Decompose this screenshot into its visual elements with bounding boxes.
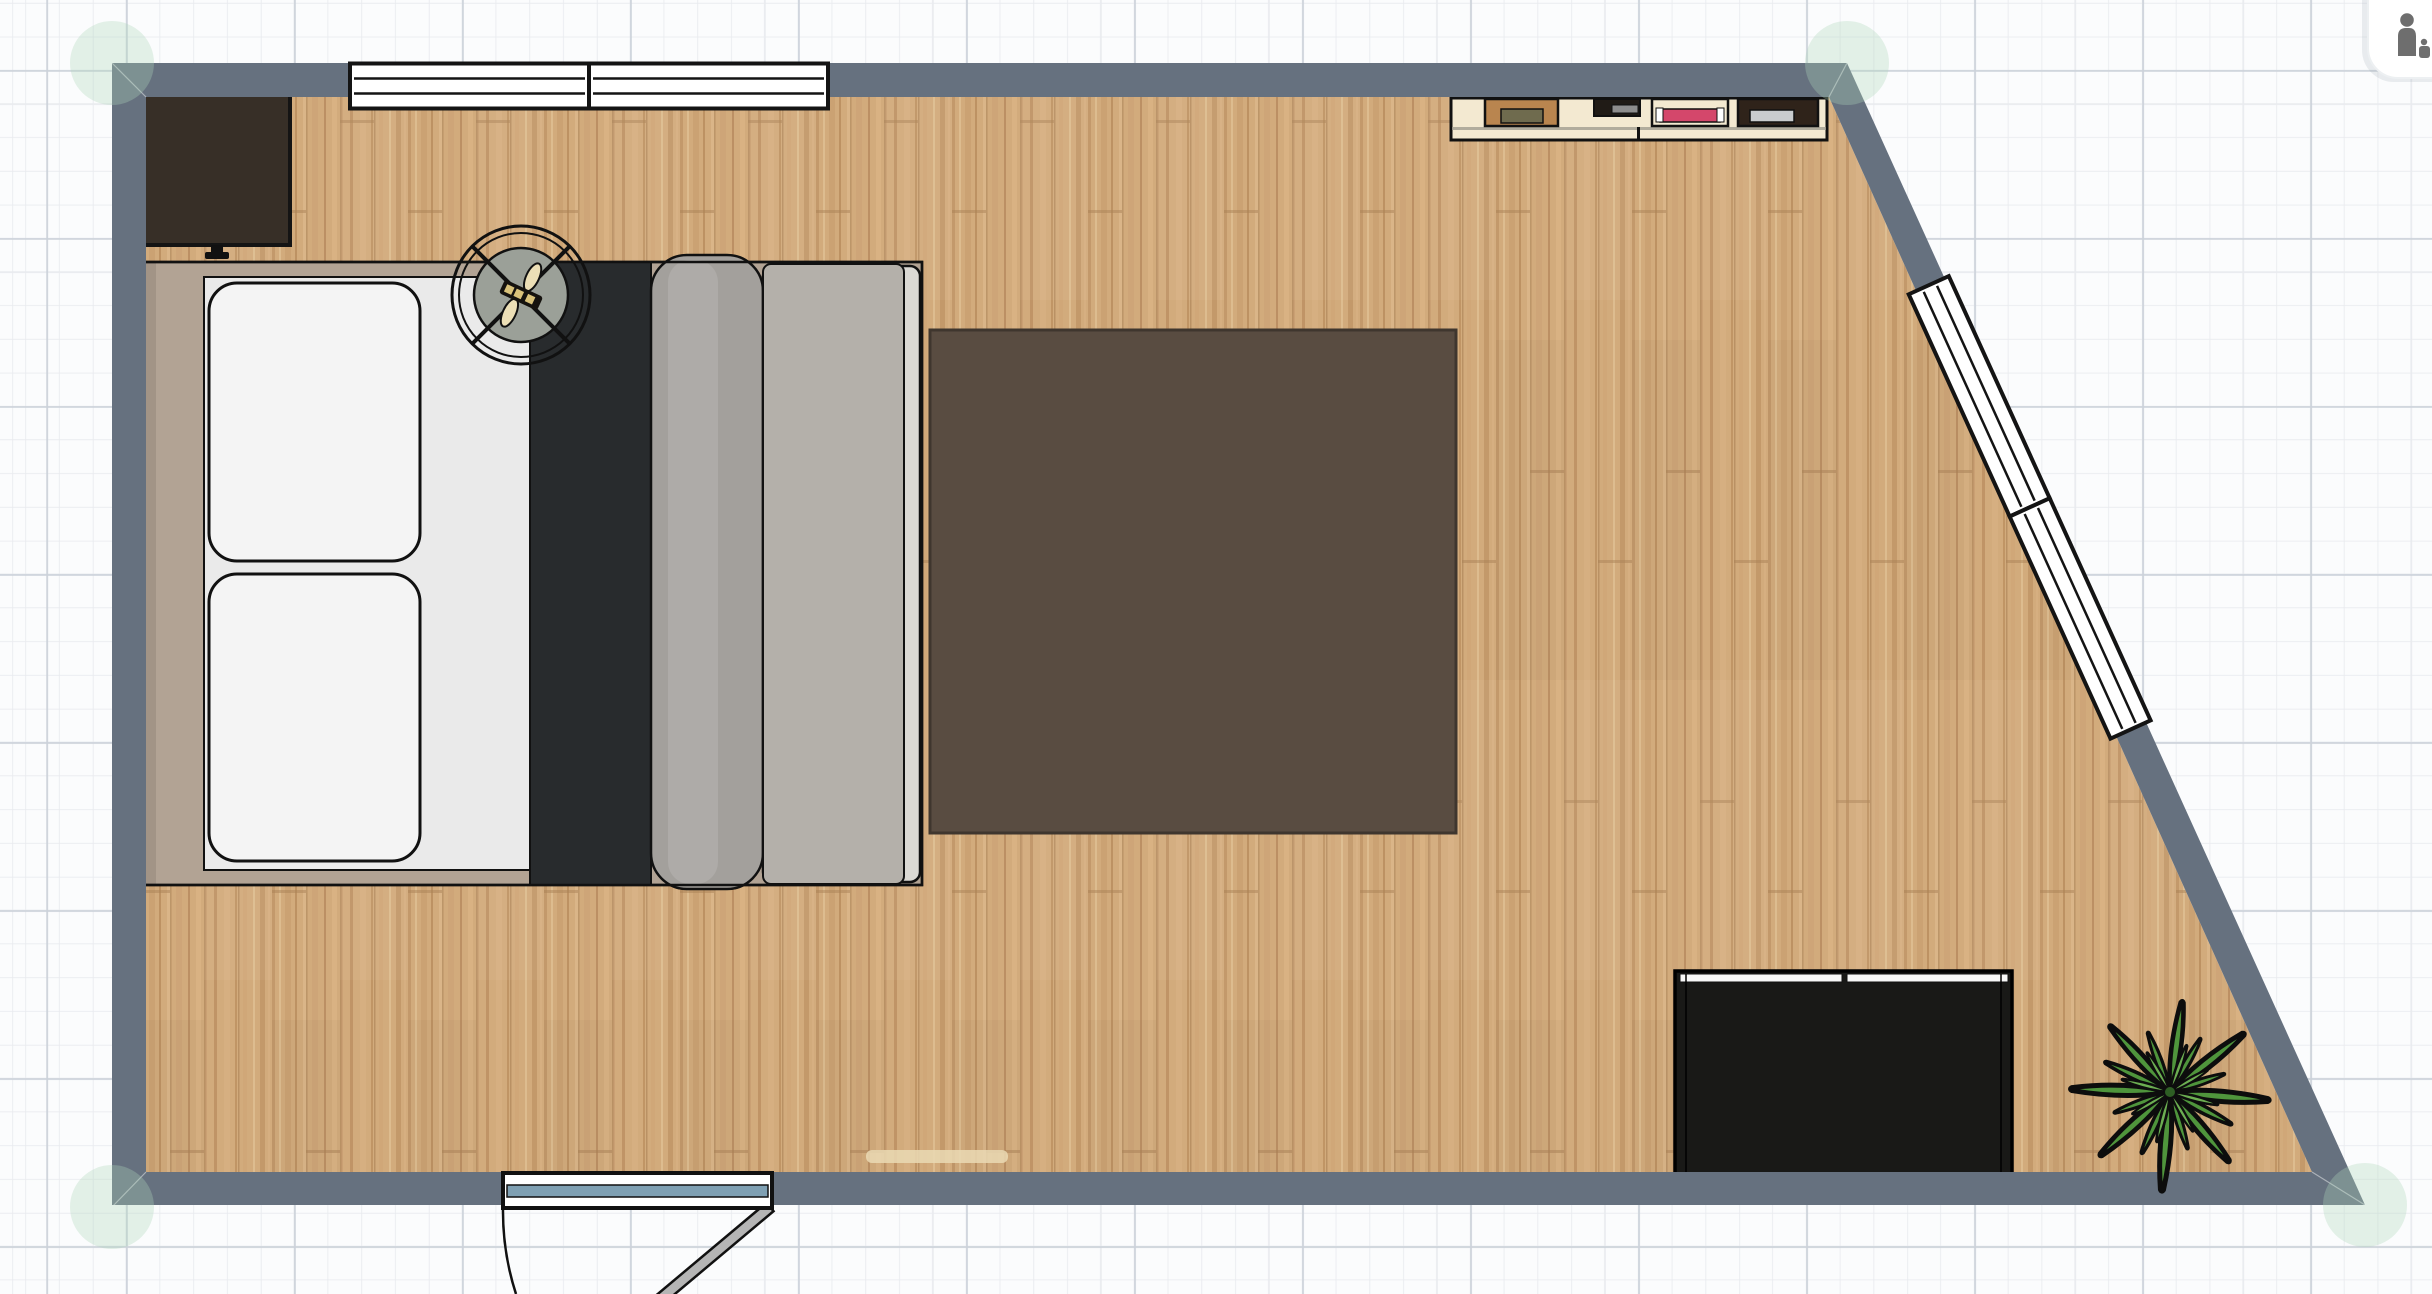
tv-mount-base [205, 252, 229, 259]
wall-shelf[interactable] [1451, 98, 1827, 140]
plant-core [2164, 1086, 2176, 1098]
shelf-item-cap [1717, 108, 1724, 122]
window-section[interactable] [589, 64, 828, 109]
bed-pillow[interactable] [209, 283, 420, 561]
door-leaf[interactable] [548, 1203, 773, 1294]
corner-snap-indicator [2323, 1163, 2407, 1247]
dresser-top-strip [1847, 974, 2008, 982]
person-head [2400, 13, 2414, 27]
door-sill-band [507, 1185, 768, 1197]
corner-snap-indicator [1805, 21, 1889, 105]
bed-foot-pad[interactable] [763, 264, 904, 884]
shelf-item-inner [1501, 109, 1543, 123]
bed[interactable] [143, 255, 922, 889]
area-rug[interactable] [930, 330, 1456, 833]
corner-snap-indicator [70, 21, 154, 105]
shelf-item-cap [1656, 108, 1663, 122]
toolbar-panel[interactable] [2362, 0, 2432, 82]
dresser-body[interactable] [1675, 971, 2012, 1175]
person-body [2398, 28, 2416, 56]
blanket-roll-highlight [668, 260, 718, 884]
corner-snap-indicator [70, 1165, 154, 1249]
floorplan-canvas [0, 0, 2432, 1294]
shelf-item-3[interactable] [1652, 99, 1728, 126]
dresser[interactable] [1675, 971, 2012, 1175]
floor-threshold-strip [866, 1150, 1008, 1163]
shelf-item-1[interactable] [1485, 99, 1558, 126]
bed-pillow[interactable] [209, 574, 420, 861]
shelf-item-4[interactable] [1738, 99, 1818, 126]
tv-screen[interactable] [144, 95, 290, 245]
small-figure-head [2421, 39, 2427, 45]
door-swing-arc [503, 1208, 516, 1294]
bed-dark-blanket[interactable] [530, 262, 651, 885]
dresser-top-strip [1680, 974, 1842, 982]
shelf-item-inner [1612, 105, 1638, 113]
door-leaf-group[interactable] [548, 1203, 773, 1294]
window-section[interactable] [350, 64, 589, 109]
floorplan-svg [0, 0, 2432, 1294]
small-figure-body [2419, 46, 2430, 58]
shelf-divider [1637, 127, 1640, 140]
shelf-item-2[interactable] [1594, 99, 1640, 116]
wall-tv[interactable] [144, 95, 290, 259]
door[interactable] [503, 1173, 774, 1294]
shelf-item-inner [1750, 110, 1794, 122]
window-top[interactable] [350, 64, 828, 109]
shelf-item-inner [1660, 109, 1720, 122]
